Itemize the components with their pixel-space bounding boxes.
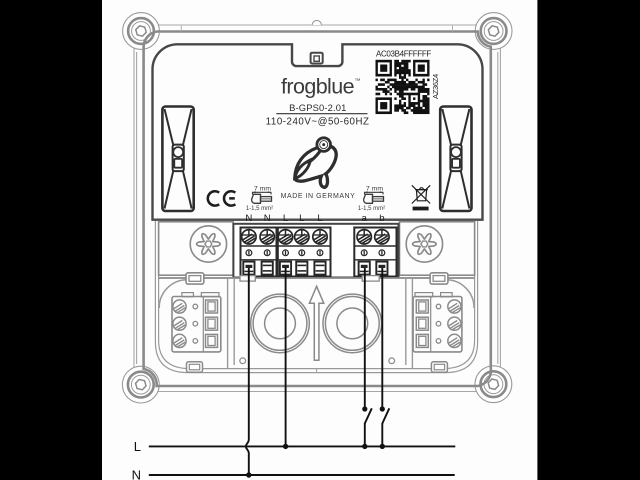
svg-text:frogblue: frogblue <box>281 75 354 99</box>
svg-text:™: ™ <box>355 78 361 85</box>
svg-text:a: a <box>362 213 368 224</box>
svg-text:7 mm: 7 mm <box>254 186 271 193</box>
svg-text:N: N <box>132 467 141 480</box>
svg-text:L: L <box>317 213 323 224</box>
svg-text:110-240V~@50-60HZ: 110-240V~@50-60HZ <box>266 117 370 128</box>
svg-text:N: N <box>264 213 271 224</box>
svg-text:N: N <box>245 213 252 224</box>
svg-text:7 mm: 7 mm <box>366 186 383 193</box>
svg-text:AZ36Z4: AZ36Z4 <box>431 74 440 99</box>
svg-text:B-GPS0-2.01: B-GPS0-2.01 <box>289 102 346 113</box>
svg-text:L: L <box>134 439 141 454</box>
svg-text:1-1,5 mm²: 1-1,5 mm² <box>358 206 385 212</box>
svg-text:1-1,5 mm²: 1-1,5 mm² <box>246 206 273 212</box>
svg-text:MADE IN GERMANY: MADE IN GERMANY <box>281 193 356 200</box>
svg-text:b: b <box>379 213 384 224</box>
svg-text:AC03B4FFFFFF: AC03B4FFFFFF <box>376 50 431 59</box>
svg-text:L: L <box>283 213 289 224</box>
svg-text:L: L <box>299 213 305 224</box>
